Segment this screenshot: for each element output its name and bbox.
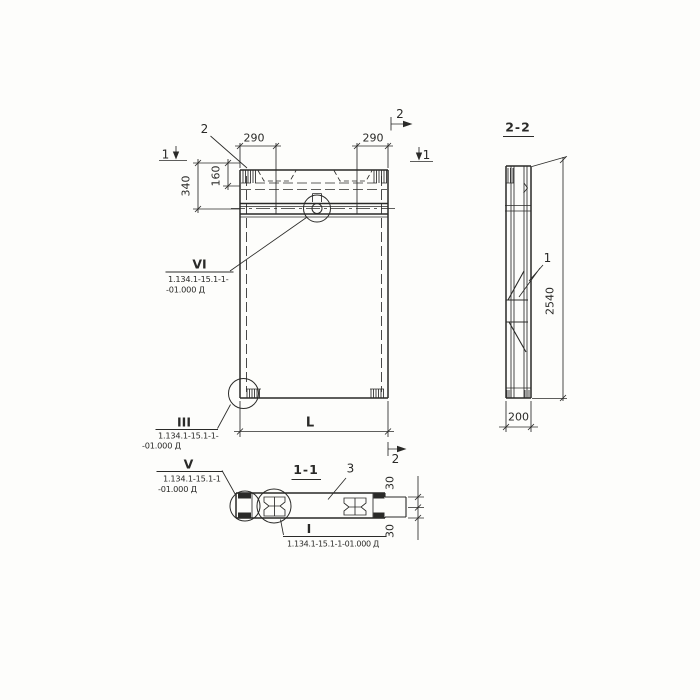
side-view-inner-lines — [511, 166, 527, 398]
section-mark-2-top: 2 — [391, 107, 413, 131]
section-mark-1-right: 1 — [410, 147, 433, 162]
section-mark-1-right-label: 1 — [423, 148, 431, 162]
callout-iii: III 1.134.1-15.1-1- -01.000 Д — [142, 405, 231, 451]
section-mark-2-top-arrow — [403, 121, 413, 127]
dim-160-label: 160 — [210, 166, 223, 187]
section-mark-1-left-arrow — [173, 152, 179, 160]
callout-i-numeral: I — [307, 521, 312, 536]
section-mark-1-right-arrow — [416, 153, 422, 161]
wedge-right-bottom — [374, 513, 385, 518]
keyway-middle — [344, 498, 366, 515]
dim-2540-extensions — [532, 157, 567, 399]
section-mark-2-bottom: 2 — [388, 442, 407, 466]
callout-iii-ref-line2: -01.000 Д — [142, 441, 181, 451]
hatch-top-left — [243, 170, 256, 183]
side-section-view: 2-2 1 2540 200 — [499, 120, 567, 433]
callout-v: V 1.134.1-15.1-1 -01.000 Д — [157, 457, 237, 497]
dim-290-right-label: 290 — [363, 132, 384, 145]
callout-v-ref-line2: -01.000 Д — [158, 484, 197, 494]
wedge-right-top — [374, 494, 385, 499]
section-bar-tongue — [385, 493, 406, 518]
callout-vi: VI 1.134.1-15.1-1- -01.000 Д — [166, 218, 307, 295]
leader-3-label: 3 — [347, 462, 355, 476]
dim-200-label: 200 — [508, 411, 529, 424]
dim-2540-label: 2540 — [544, 287, 557, 315]
dim-290-left-label: 290 — [244, 132, 265, 145]
dim-30-bottom-label: 30 — [384, 524, 397, 538]
leader-2-top-label: 2 — [201, 122, 209, 136]
side-view-hatch-bottom — [507, 390, 529, 398]
callout-vi-numeral: VI — [192, 257, 206, 272]
hidden-lines-top — [241, 183, 387, 190]
section-1-1-title: 1-1 — [293, 462, 319, 477]
callout-iii-leader — [218, 405, 231, 429]
dim-340-label: 340 — [180, 176, 193, 197]
callout-i-ref: 1.134.1-15.1-1-01.000 Д — [287, 540, 379, 549]
callout-v-ref-line1: 1.134.1-15.1-1 — [163, 474, 221, 484]
wedge-left-top — [238, 494, 251, 499]
callout-vi-ref-line1: 1.134.1-15.1-1- — [168, 274, 229, 284]
page: { "page_bg": "#fdfdfb", "drawing_ink": "… — [0, 0, 700, 700]
section-mark-1-left: 1 — [159, 146, 187, 162]
wedge-left-bottom — [238, 513, 251, 518]
callout-iii-numeral: III — [177, 415, 191, 430]
drawing-canvas: 290 290 340 160 L 1 1 2 — [0, 0, 700, 700]
callout-v-numeral: V — [184, 457, 194, 472]
callout-v-leader — [222, 471, 237, 497]
section-mark-2-bottom-label: 2 — [392, 452, 400, 466]
section-mark-1-left-label: 1 — [162, 148, 170, 162]
side-view-leader-1-label: 1 — [544, 251, 552, 265]
recess-left — [258, 171, 296, 182]
dim-L-label: L — [306, 416, 314, 431]
side-view-console-detail — [507, 271, 529, 352]
callout-vi-leader — [230, 218, 307, 272]
bottom-section-view: 1-1 3 30 30 — [230, 462, 424, 541]
callout-i: I 1.134.1-15.1-1-01.000 Д — [281, 520, 387, 549]
recess-right — [334, 171, 372, 182]
dim-30-extensions — [408, 497, 424, 518]
keyway-left — [264, 497, 285, 516]
callout-iii-ref-line1: 1.134.1-15.1-1- — [158, 431, 219, 441]
section-mark-2-top-label: 2 — [396, 107, 404, 121]
callout-vi-ref-line2: -01.000 Д — [166, 285, 205, 295]
hatch-top-right — [374, 170, 387, 183]
detail-circle-iii — [229, 379, 259, 409]
side-view-hatch-top — [506, 168, 514, 183]
leader-3-line — [328, 478, 346, 500]
side-view-title: 2-2 — [505, 120, 531, 135]
dim-30-top-label: 30 — [384, 476, 397, 490]
technical-drawing: 290 290 340 160 L 1 1 2 — [0, 0, 700, 700]
